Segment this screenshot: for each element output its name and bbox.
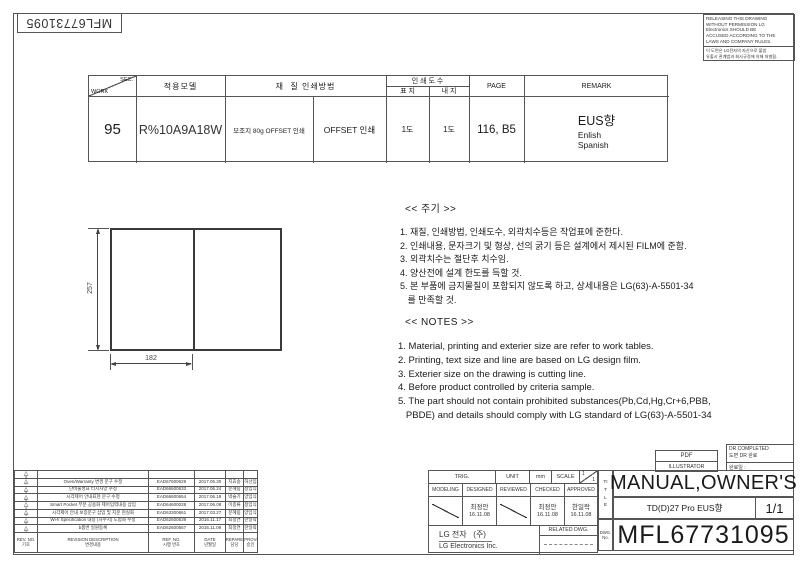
dim-arrow-left-icon [110,362,116,366]
revision-ref-no: EAD66600633 [149,487,195,494]
approved-date: 16.11.08 [570,512,591,519]
model-spec-row: TD(D)27 Pro EUS향 1/1 [613,497,794,519]
cover-subheader: 표 지 [386,86,429,96]
designed-signature-cell: 최정안 16.11.08 [463,497,497,525]
revision-prepared [226,471,244,478]
page-value: 116, B5 [469,96,524,163]
revision-date: 2017.06.24 [195,487,226,494]
completion-date-label: 완료일 : [727,463,793,472]
dr-completed-label-ko: 도면 DR 완료 [729,453,791,460]
model-value: R%10A9A18W [136,96,225,163]
revision-marker-icon: △1 [24,526,29,532]
output-format-box: PDF ILLUSTRATOR [655,450,718,472]
remark-column-header: REMARK [524,76,669,96]
revision-ref-no: EAD62600639 [149,518,195,525]
revision-ref-no: EAD67600629 [149,479,195,486]
revision-date: 2017.03.27 [195,510,226,517]
reviewed-header: REVIEWED [497,484,531,496]
related-dwg-cell: RELATED DWG. [540,526,597,555]
signoff-signature-row: 최정안 16.11.08 최정안 16.11.08 한일락 16.11.08 [429,496,597,525]
approved-signature-cell: 한일락 16.11.08 [565,497,597,525]
drawing-number: MFL67731095 [617,521,789,550]
revision-prepared: 이종류 [226,502,244,509]
remark-region: EUS향 [578,110,615,129]
signature-slash-icon [432,504,459,518]
revision-row: △3 시각제어 안내 보증문구 삽입 및 지문 현실화 EAD63300661 … [15,509,257,517]
revision-approved: 정임식 [244,487,257,494]
document-title-box: MANUAL,OWNER'S [613,470,794,497]
sec-work-header-cell: SEC. WORK [89,76,136,96]
revision-approved: 한일락 [244,525,257,532]
notes-english-section: << NOTES >> 1. Material, printing and ex… [398,317,792,423]
model-column-header: 적용모델 [136,76,225,96]
unit-value: mm [530,471,552,483]
dimension-line-vertical [97,230,98,349]
revision-marker-icon: △5 [24,495,29,501]
work-spec-table: SEC. WORK 적용모델 재 질 인쇄방법 인 쇄 도 수 표 지 내 지 … [88,75,668,162]
illustrator-label: ILLUSTRATOR [656,462,717,472]
signature-slash-icon [500,504,527,518]
revision-row: △6 단비물성표 터치사양 수정 EAD66600633 2017.06.24 … [15,486,257,494]
signoff-role-row: MODELING DESIGNED REVIEWED CHECKED APPRO… [429,483,597,496]
warning-en-line: LAWS AND COMPANY RULES. [706,39,792,45]
revision-table-header-row: REV. NO.기호 REVISION DESCRIPTION변경내용 REF.… [15,532,257,552]
revision-history-table: △8 △7 Oven/Warranty 변경 문구 수정 EAD67600629… [14,470,258,553]
revision-marker-icon: △8 [24,471,29,477]
company-cell: LG 전자 (주) LG Electronics Inc. [429,526,540,555]
revision-description: 시각제어 안내표현 문구 수정 [38,494,149,501]
related-dwg-dashed-line [544,536,592,545]
checked-signature-cell: 최정안 16.11.08 [531,497,565,525]
revision-marker-icon: △3 [24,510,29,516]
note-item: 2. 인쇄내용, 문자크기 및 형상, 선의 굵기 등은 설계에서 제시된 FI… [400,240,792,254]
height-dimension-label: 257 [85,276,95,300]
unit-label: UNIT [496,471,530,483]
dr-completed-section: DR COMPLETED 도면 DR 완료 [727,445,793,463]
related-dwg-label: RELATED DWG. [540,526,597,536]
work-label: WORK [91,89,108,95]
note-item: 5. 본 부품에 금지물질이 포함되지 않도록 하고, 상세내용은 LG(63)… [400,280,792,307]
scale-value-cell: 1 1 [580,471,597,483]
revision-prepared: 문혜림 [226,487,244,494]
revision-date: 2017.05.30 [195,479,226,486]
corner-part-number-box: MFL67731095 [17,13,122,33]
modeling-header: MODELING [429,484,463,496]
revision-description: Wi-fi Specification 내용 (자수치) 도합화 수정 [38,518,149,525]
remark-value: EUS향 Enlish Spanish [524,96,669,163]
ref-no-header-ko: 시행 번호 [163,543,180,548]
reviewed-signature-cell [497,497,531,525]
revision-description: 시각제어 안내 보증문구 삽입 및 지문 현실화 [38,510,149,517]
model-spec: TD(D)27 Pro EUS향 [614,498,756,518]
remark-language-2: Spanish [578,140,615,150]
revision-description: b품번 일원등록 [38,525,149,532]
warning-english: RELEASING THIS DRAWING WITHOUT PERMISSIO… [704,15,794,47]
corner-part-number: MFL67731095 [26,16,112,30]
revision-row: △4 Smart Pocket 부분 공용화 제어입력내용 삽입 EAD6460… [15,501,257,509]
revision-marker-icon: △4 [24,502,29,508]
print-count-header: 인 쇄 도 수 [386,76,469,86]
drawing-number-box: MFL67731095 [613,519,794,551]
approved-header: APPROVED [565,484,597,496]
revision-row: △2 Wi-fi Specification 내용 (자수치) 도합화 수정 E… [15,517,257,525]
dwg-no-label: DWG. No. [599,530,612,541]
revision-description: Smart Pocket 부분 공용화 제어입력내용 삽입 [38,502,149,509]
note-item: 4. 양산전에 설계 한도를 득할 것. [400,267,792,281]
dr-completed-box: DR COMPLETED 도면 DR 완료 완료일 : [726,444,794,471]
note-item: 3. 외곽치수는 절단후 치수임. [400,253,792,267]
revision-description [38,471,149,478]
approved-name: 한일락 [572,504,590,512]
material-method-column-header: 재 질 인쇄방법 [225,76,386,96]
revision-approved: 양임식 [244,510,257,517]
notes-korean-title: << 주기 >> [405,200,792,215]
scale-label: SCALE [552,471,580,483]
designed-header: DESIGNED [463,484,497,496]
sec-label: SEC. [120,77,133,83]
note-item: 3. Exterier size on the drawing is cutti… [398,368,792,382]
dim-arrow-right-icon [186,362,192,366]
company-related-row: LG 전자 (주) LG Electronics Inc. RELATED DW… [429,525,597,555]
dwg-no-strip: DWG. No. [598,519,613,551]
revision-row: △8 [15,471,257,478]
warning-korean: 이 도면은 LG전자의 자산으로 불법 유출시 관계법과 회사규정에 의해 처벌… [704,47,794,61]
revision-approved: 정임식 [244,502,257,509]
revision-prepared: 문혜림 [226,510,244,517]
revision-date: 2016.11.17 [195,518,226,525]
cover-count-value: 1도 [386,96,429,163]
notes-english-title: << NOTES >> [405,317,792,328]
revision-prepared: 최정연 [226,525,244,532]
signoff-block: TRIG. UNIT mm SCALE 1 1 MODELING DESIGNE… [428,470,598,553]
revision-ref-no: EAD66600654 [149,494,195,501]
print-method-value: OFFSET 인쇄 [313,96,386,163]
cover-rectangle [110,228,282,351]
sheet-number: 1/1 [756,498,793,518]
revision-description: Oven/Warranty 변경 문구 수정 [38,479,149,486]
revision-row: △5 시각제어 안내표현 문구 수정 EAD66600654 2017.06.1… [15,493,257,501]
revision-approved: 한일락 [244,518,257,525]
checked-date: 16.11.08 [537,512,558,519]
checked-header: CHECKED [531,484,565,496]
revision-approved: 허선임 [244,479,257,486]
approved-header-ko: 승인 [247,543,255,548]
revision-row: △7 Oven/Warranty 변경 문구 수정 EAD67600629 20… [15,478,257,486]
scale-denominator: 1 [592,477,595,483]
revision-date: 2017.06.08 [195,502,226,509]
work-number-value: 95 [89,96,136,163]
document-title: MANUAL,OWNER'S [610,472,797,495]
designed-date: 16.11.08 [469,512,490,519]
warning-ko-line: 유출시 관계법과 회사규정에 의해 처벌됨. [706,54,792,60]
notes-korean-section: << 주기 >> 1. 재질, 인쇄방법, 인쇄도수, 외곽치수등은 작업표에 … [400,200,792,307]
revision-marker-icon: △7 [24,479,29,485]
revision-description: 단비물성표 터치사양 수정 [38,487,149,494]
remark-language-1: Enlish [578,130,615,140]
revision-row: △1 b품번 일원등록 EAD62600567 2016.11.08 최정연 한… [15,524,257,532]
inner-count-value: 1도 [429,96,469,163]
revision-date: 2017.06.19 [195,494,226,501]
note-item: 2. Printing, text size and line are base… [398,354,792,368]
dim-arrow-down-icon [96,345,100,351]
checked-name: 최정안 [539,504,557,512]
company-name-korean: LG 전자 (주) [439,530,492,542]
note-item: 1. 재질, 인쇄방법, 인쇄도수, 외곽치수등은 작업표에 준한다. [400,226,792,240]
note-item: 5. The part should not contain prohibite… [398,395,792,423]
spine-fold-line [193,230,195,349]
cover-outline-drawing: 257 182 [70,215,310,380]
revision-ref-no: EAD63300661 [149,510,195,517]
revision-prepared: 박슬기 [226,494,244,501]
revision-ref-no [149,471,195,478]
modeling-signature-cell [429,497,463,525]
note-item: 4. Before product controlled by criteria… [398,381,792,395]
note-item: 1. Material, printing and exterier size … [398,340,792,354]
dimension-line-horizontal [112,363,191,364]
trig-label: TRIG. [429,471,496,483]
material-value: 모조지 80g OFFSET 인쇄 [225,96,313,163]
width-dimension-label: 182 [136,354,166,363]
description-header-ko: 변경내용 [85,543,101,548]
revision-marker-icon: △6 [24,487,29,493]
revision-approved: 양임식 [244,494,257,501]
extension-line [192,354,193,370]
revision-prepared: 최정연 [226,518,244,525]
revision-date [195,471,226,478]
revision-date: 2016.11.08 [195,525,226,532]
inner-subheader: 내 지 [429,86,469,96]
designed-name: 최정안 [471,504,489,512]
page-column-header: PAGE [469,76,524,96]
title-vertical-label: TITLE [603,479,608,510]
scale-numerator: 1 [582,471,585,477]
revision-marker-icon: △2 [24,518,29,524]
warning-box: RELEASING THIS DRAWING WITHOUT PERMISSIO… [703,14,795,61]
signoff-top-row: TRIG. UNIT mm SCALE 1 1 [429,471,597,483]
revision-ref-no: EAD64600028 [149,502,195,509]
revision-ref-no: EAD62600567 [149,525,195,532]
revision-approved [244,471,257,478]
pdf-label: PDF [656,451,717,462]
drawing-sheet: { "colors": { "ink": "#1a1a1a", "line": … [0,0,802,567]
revision-prepared: 지효송 [226,479,244,486]
date-header-ko: 년월일 [204,543,216,548]
rev-no-header-ko: 기호 [22,543,30,548]
prepared-header-ko: 담당 [231,543,239,548]
company-name-english: LG Electronics Inc. [439,543,498,552]
dim-arrow-up-icon [96,228,100,234]
